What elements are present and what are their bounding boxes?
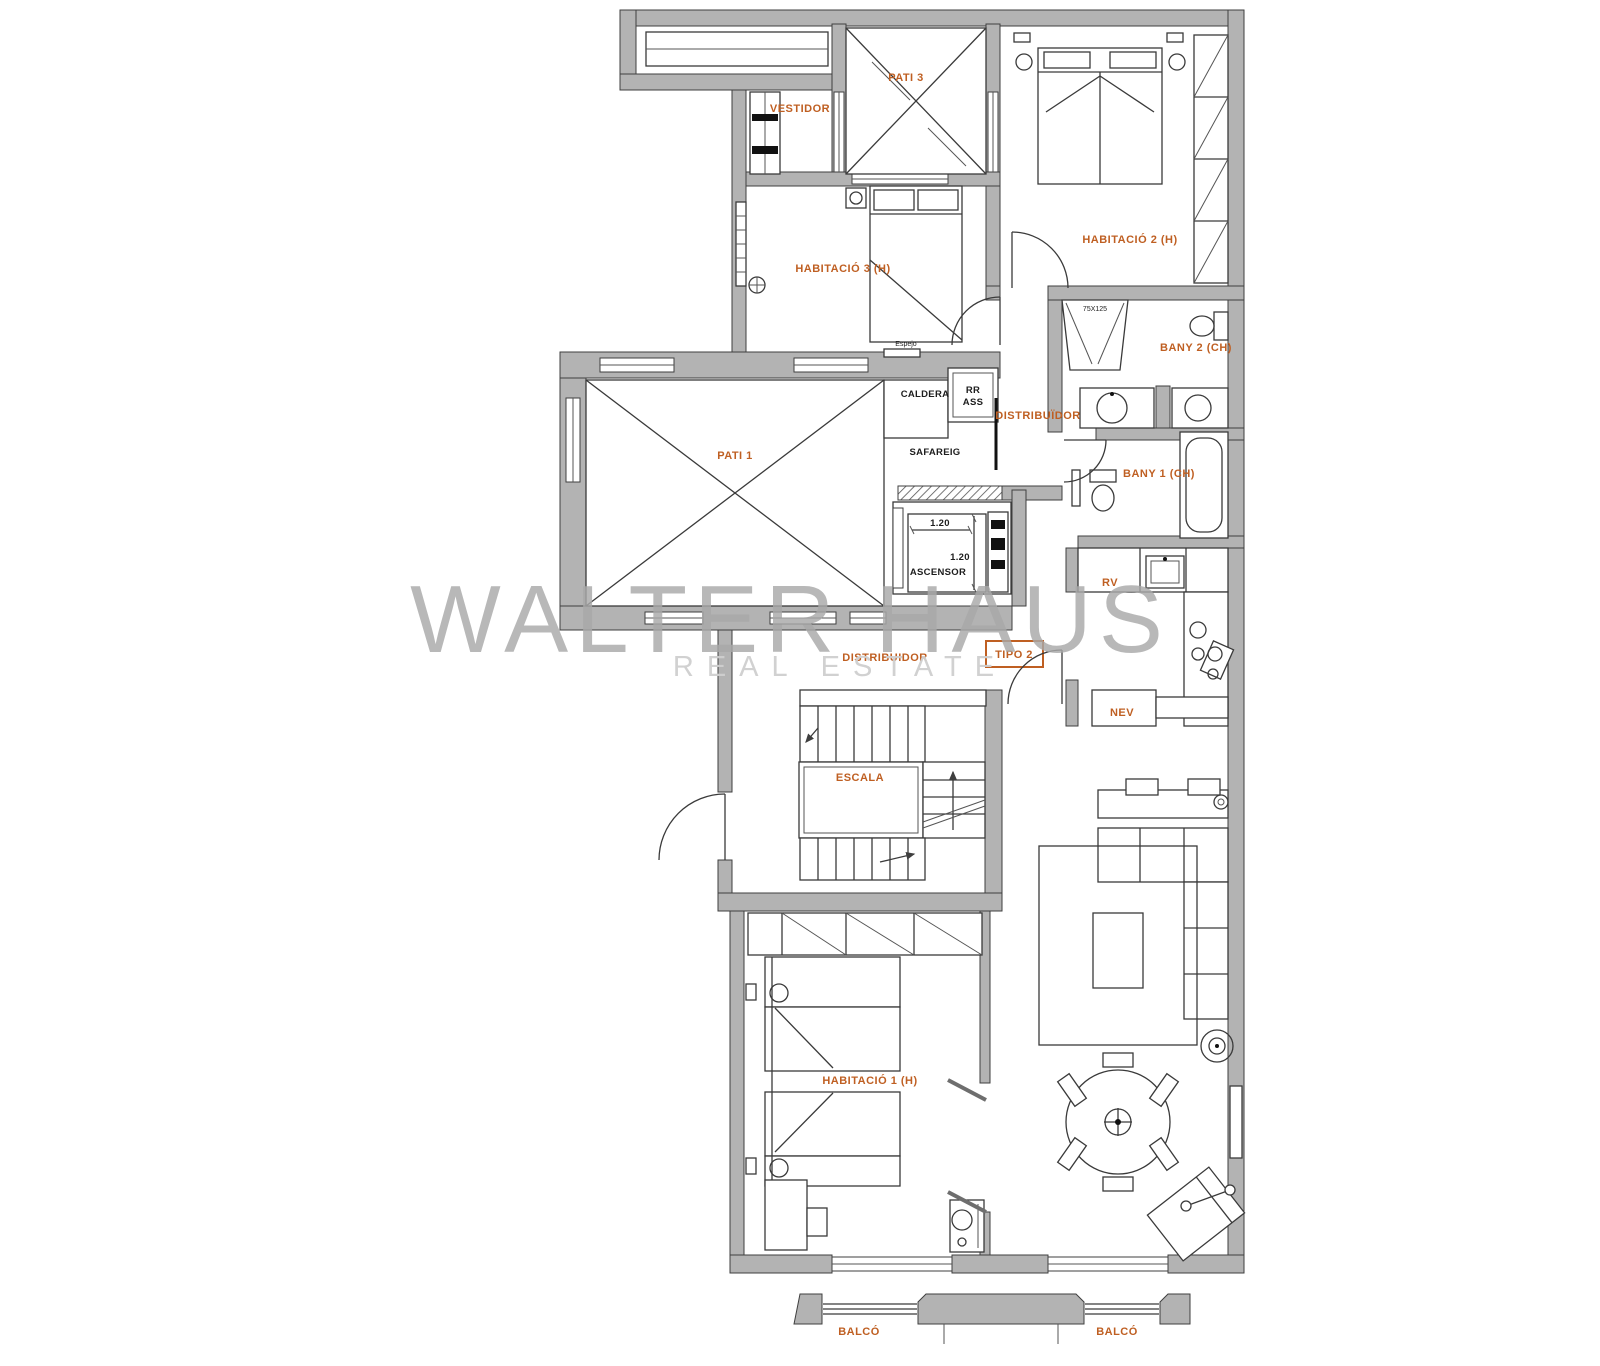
wall-segment (620, 74, 834, 90)
wall-segment (1002, 486, 1062, 500)
wall-segment (730, 1255, 832, 1273)
bed-single (765, 1007, 900, 1071)
balcony-railing (1085, 1304, 1159, 1314)
dining-table (1058, 1053, 1179, 1191)
desk-lamp-base (1181, 1201, 1191, 1211)
wall-segment (985, 690, 1002, 911)
bathroom1-fixtures (1064, 432, 1228, 538)
window (834, 92, 844, 172)
window (794, 358, 868, 372)
desk (765, 1180, 807, 1250)
toilet (1090, 470, 1116, 511)
label-escala: ESCALA (836, 772, 884, 784)
built-in-closet (646, 32, 828, 66)
wall-segment (1168, 1255, 1244, 1273)
living-room-furniture (1039, 779, 1245, 1261)
label-ass: ASS (963, 397, 983, 408)
corridor-door-arc (659, 794, 725, 860)
label-pati-1: PATI 1 (717, 450, 753, 462)
bed-single (765, 1092, 900, 1156)
balcony-railing (823, 1304, 917, 1314)
balcony-pier (918, 1294, 1084, 1324)
wall-light (746, 1158, 756, 1174)
wall-segment (1048, 286, 1244, 300)
wall-radiator (1230, 1086, 1242, 1158)
balcony-door (1048, 1257, 1168, 1271)
sink-counter (1080, 388, 1154, 428)
label-habitacio-2: HABITACIÓ 2 (H) (1082, 233, 1177, 246)
hatched-wall (898, 486, 1002, 500)
window (852, 174, 948, 184)
wall-segment (1066, 680, 1078, 726)
label-balco-dret: BALCÓ (1096, 1325, 1138, 1338)
window (600, 358, 674, 372)
wall-segment (730, 911, 744, 1273)
label-balco-esquerre: BALCÓ (838, 1325, 880, 1338)
wall-light (746, 984, 756, 1000)
wall-segment (620, 10, 1244, 26)
mirror-dresser (884, 349, 920, 357)
label-safareig: SAFAREIG (910, 447, 961, 458)
label-habitacio-1: HABITACIÓ 1 (H) (822, 1074, 917, 1087)
label-dim-fons: 1.20 (950, 552, 970, 563)
balcony-pier (1160, 1294, 1190, 1324)
wall-segment (1228, 10, 1244, 1273)
wall-segment (718, 893, 1002, 911)
coffee-table (1093, 913, 1143, 988)
desk-chair (807, 1208, 827, 1236)
label-nev: NEV (1110, 707, 1134, 719)
label-caldera: CALDERA (901, 389, 950, 400)
wardrobe (1194, 35, 1228, 283)
wall-segment (952, 1255, 1048, 1273)
toilet (1190, 312, 1228, 340)
bathroom2-fixtures (1062, 300, 1228, 428)
label-distribuidor-superior: DISTRIBUÏDOR (995, 409, 1080, 422)
label-bany-1: BANY 1 (CH) (1123, 468, 1195, 480)
label-habitacio-3: HABITACIÓ 3 (H) (795, 262, 890, 275)
sink-counter (1172, 388, 1228, 428)
label-mirall: 75X125 (1083, 306, 1107, 313)
window (566, 398, 580, 482)
label-pati-3: PATI 3 (888, 72, 924, 84)
bathtub (1180, 432, 1228, 538)
radiator (1072, 470, 1080, 506)
floor-plan-svg: PATI 3 VESTIDOR HABITACIÓ 3 (H) HABITACI… (0, 0, 1600, 1366)
staircase (799, 690, 986, 880)
label-dim-ample: 1.20 (930, 518, 950, 529)
window (988, 92, 998, 172)
label-espejo: Espejo (895, 341, 917, 348)
balcony-door (832, 1257, 952, 1271)
desk-lamp (1225, 1185, 1235, 1195)
door-arc (1012, 232, 1068, 288)
wardrobe (748, 913, 982, 955)
bedroom2-furniture (1012, 33, 1228, 288)
label-bany-2: BANY 2 (CH) (1160, 342, 1232, 354)
floor-plan-page: PATI 3 VESTIDOR HABITACIÓ 3 (H) HABITACI… (0, 0, 1600, 1366)
watermark-tagline: REAL ESTATE (673, 651, 1007, 683)
wall-segment (1156, 386, 1170, 432)
balcony-pier (794, 1294, 822, 1324)
label-rr: RR (966, 385, 980, 396)
watermark: WALTER HAUS REAL ESTATE (410, 566, 1170, 683)
label-vestidor: VESTIDOR (770, 103, 830, 115)
pati-3-court (846, 28, 986, 174)
